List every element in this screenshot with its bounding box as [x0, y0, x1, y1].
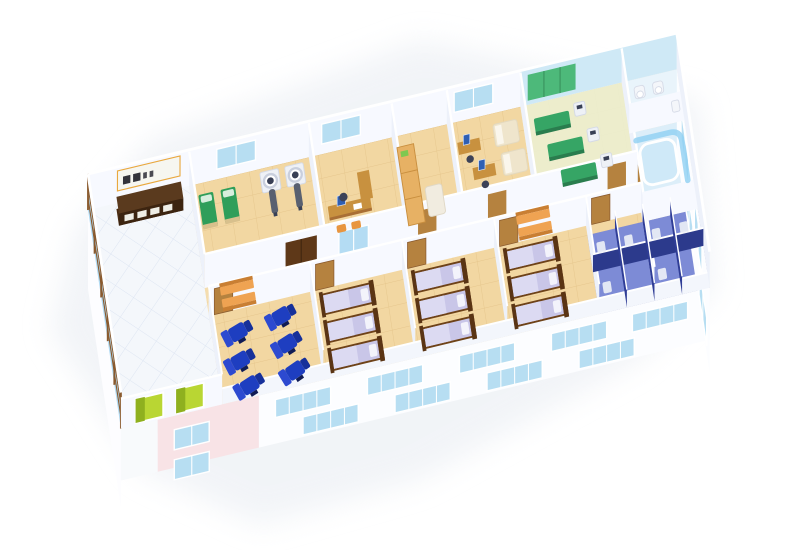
monitor — [462, 134, 471, 146]
fixture — [602, 281, 612, 294]
fixture — [624, 234, 634, 247]
hospital-floorplan-image — [0, 0, 800, 550]
monitor — [477, 159, 486, 171]
therapy-machine — [600, 152, 613, 168]
fixture — [651, 227, 661, 240]
therapy-machine — [573, 101, 586, 117]
door — [312, 260, 338, 290]
sink — [671, 100, 680, 113]
lobby-under-wall — [113, 420, 165, 481]
therapy-machine — [587, 127, 600, 143]
floorplan-svg — [0, 0, 800, 550]
fixture — [596, 241, 606, 254]
door — [404, 238, 430, 268]
hydro-tub — [639, 137, 680, 186]
door — [588, 194, 614, 224]
fixture — [679, 221, 689, 234]
fixture — [657, 267, 667, 280]
